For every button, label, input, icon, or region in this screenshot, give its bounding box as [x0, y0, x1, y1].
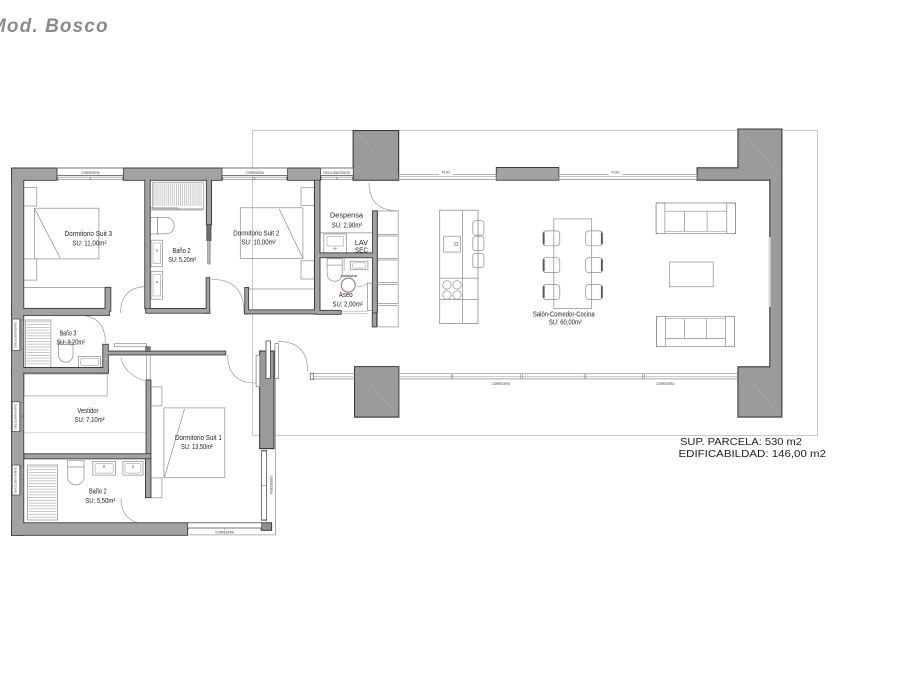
svg-text:SU: 11,00m²: SU: 11,00m² [72, 238, 107, 247]
svg-text:OSCILOBATIENTE: OSCILOBATIENTE [14, 467, 18, 493]
svg-text:SEC: SEC [355, 247, 368, 254]
svg-text:SU: 60,00m²: SU: 60,00m² [549, 320, 582, 327]
svg-text:OSCILOBATIENTE: OSCILOBATIENTE [323, 171, 350, 175]
svg-text:Mod. Bosco: Mod. Bosco [0, 16, 109, 37]
svg-text:SU: 13,50m²: SU: 13,50m² [181, 442, 213, 451]
svg-text:FIJO: FIJO [612, 170, 620, 175]
svg-text:SU: 3,20m²: SU: 3,20m² [56, 337, 85, 346]
svg-text:CORREDERA: CORREDERA [492, 382, 511, 386]
svg-text:SUP. PARCELA: 530 m2: SUP. PARCELA: 530 m2 [680, 437, 802, 448]
svg-text:EDIFICABILDAD: 146,00 m2: EDIFICABILDAD: 146,00 m2 [679, 449, 827, 460]
svg-text:SU: 10,00m²: SU: 10,00m² [242, 237, 277, 246]
svg-text:SU: 7,10m²: SU: 7,10m² [75, 415, 106, 424]
svg-text:SU: 2,90m²: SU: 2,90m² [332, 220, 363, 229]
svg-text:CORREDERA: CORREDERA [81, 170, 100, 175]
svg-text:LAV: LAV [355, 240, 368, 247]
svg-text:CORREDERA: CORREDERA [656, 382, 675, 386]
svg-text:SU: 5,50m²: SU: 5,50m² [85, 496, 116, 505]
svg-text:CORREDERA: CORREDERA [215, 530, 234, 534]
svg-text:OSCILOBATIENTE: OSCILOBATIENTE [14, 404, 18, 430]
svg-text:solatube: solatube [341, 274, 358, 278]
svg-text:Baño 3: Baño 3 [60, 329, 77, 338]
svg-text:Baño 2: Baño 2 [89, 487, 107, 496]
svg-text:Despensa: Despensa [330, 211, 363, 220]
svg-text:Salón-Comedor-Cocina: Salón-Comedor-Cocina [533, 312, 595, 319]
svg-text:Aseo: Aseo [339, 290, 353, 299]
svg-text:CORREDERA: CORREDERA [246, 170, 265, 175]
svg-text:SU: 2,00m²: SU: 2,00m² [333, 300, 364, 309]
svg-text:OSCILOBATIENTE: OSCILOBATIENTE [14, 322, 18, 348]
svg-text:CORREDERA: CORREDERA [269, 476, 273, 495]
svg-text:Baño 2: Baño 2 [172, 246, 190, 255]
svg-text:SU: 5,20m²: SU: 5,20m² [168, 255, 196, 264]
svg-text:Dormitorio Suit 1: Dormitorio Suit 1 [175, 433, 222, 442]
svg-text:Dormitorio Suit 3: Dormitorio Suit 3 [65, 229, 113, 238]
svg-text:FIJO: FIJO [442, 170, 450, 175]
svg-text:Vestidor: Vestidor [77, 406, 98, 415]
